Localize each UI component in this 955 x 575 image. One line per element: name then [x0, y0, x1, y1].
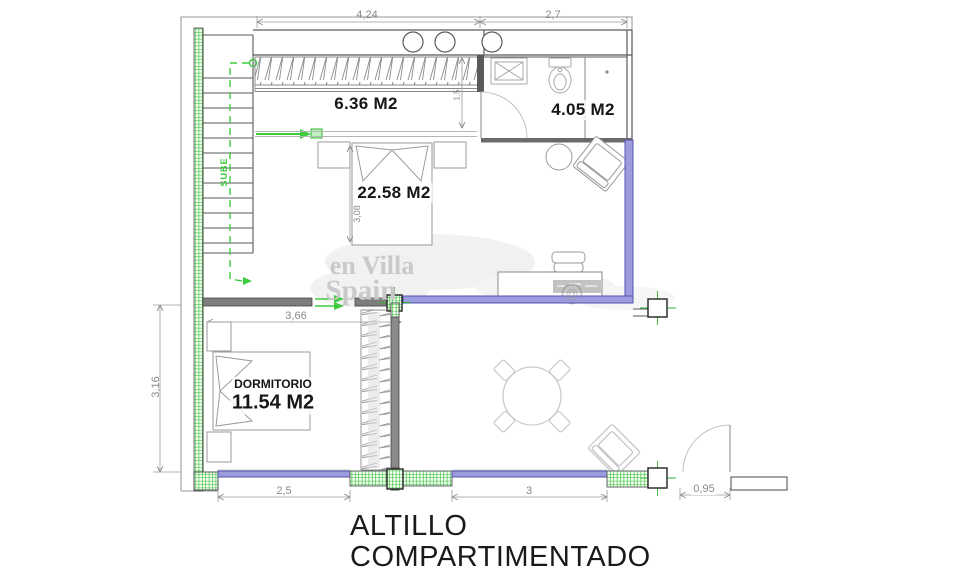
bathroom-door: [477, 55, 527, 138]
main-room-area-label: 22.58 M2: [355, 183, 432, 203]
nightstand: [434, 142, 466, 168]
desk-chair: [552, 252, 585, 272]
wardrobe: [361, 303, 399, 490]
dimension-top-right: 2,7: [545, 9, 560, 21]
dimension-window-left: 2,5: [276, 485, 291, 497]
stairs-direction-label: SUBE: [219, 157, 229, 186]
floor-plan-drawing: [0, 0, 955, 575]
bathroom-area-label: 4.05 M2: [549, 100, 617, 120]
dimension-dormitorio-width: 3,66: [285, 310, 306, 322]
shower-tray: [491, 58, 527, 84]
closet-area-label: 6.36 M2: [332, 94, 400, 114]
plan-title-line1: ALTILLO: [350, 511, 651, 542]
entry-arrow: [256, 129, 322, 139]
plan-title-line2: COMPARTIMENTADO: [350, 542, 651, 573]
dimension-closet-depth: 1,5: [453, 89, 462, 100]
dining-set: [493, 359, 570, 432]
window: [218, 471, 350, 477]
watermark-text-line2: Spain: [326, 275, 397, 308]
armchair: [588, 424, 640, 476]
window: [452, 471, 607, 477]
column: [387, 469, 403, 489]
side-table: [546, 144, 572, 170]
floor-plan-page: 4,24 2,7 1,5 3,08 3,66 3,16 2,5 3 0,95 S…: [0, 0, 955, 575]
nightstand: [318, 142, 350, 168]
toilet: [549, 58, 571, 93]
nightstand: [207, 432, 231, 462]
dimension-bed-length: 3,08: [352, 205, 362, 223]
plan-title: ALTILLO COMPARTIMENTADO: [350, 511, 651, 573]
dimension-dormitorio-depth: 3,16: [150, 376, 162, 397]
dimension-top-left: 4,24: [356, 9, 377, 21]
entrance-door: [683, 425, 730, 472]
dimension-door-right: 0,95: [691, 483, 716, 495]
dormitorio-area-label: 11.54 M2: [230, 392, 316, 415]
top-dimension-lines: [257, 16, 627, 28]
nightstand: [207, 322, 231, 351]
armchair: [573, 136, 629, 192]
drain-dot: [605, 70, 608, 73]
watermark-at-symbol: @: [565, 287, 578, 302]
dimension-window-right: 3: [526, 485, 532, 497]
dormitorio-name-label: DORMITORIO: [232, 377, 314, 391]
